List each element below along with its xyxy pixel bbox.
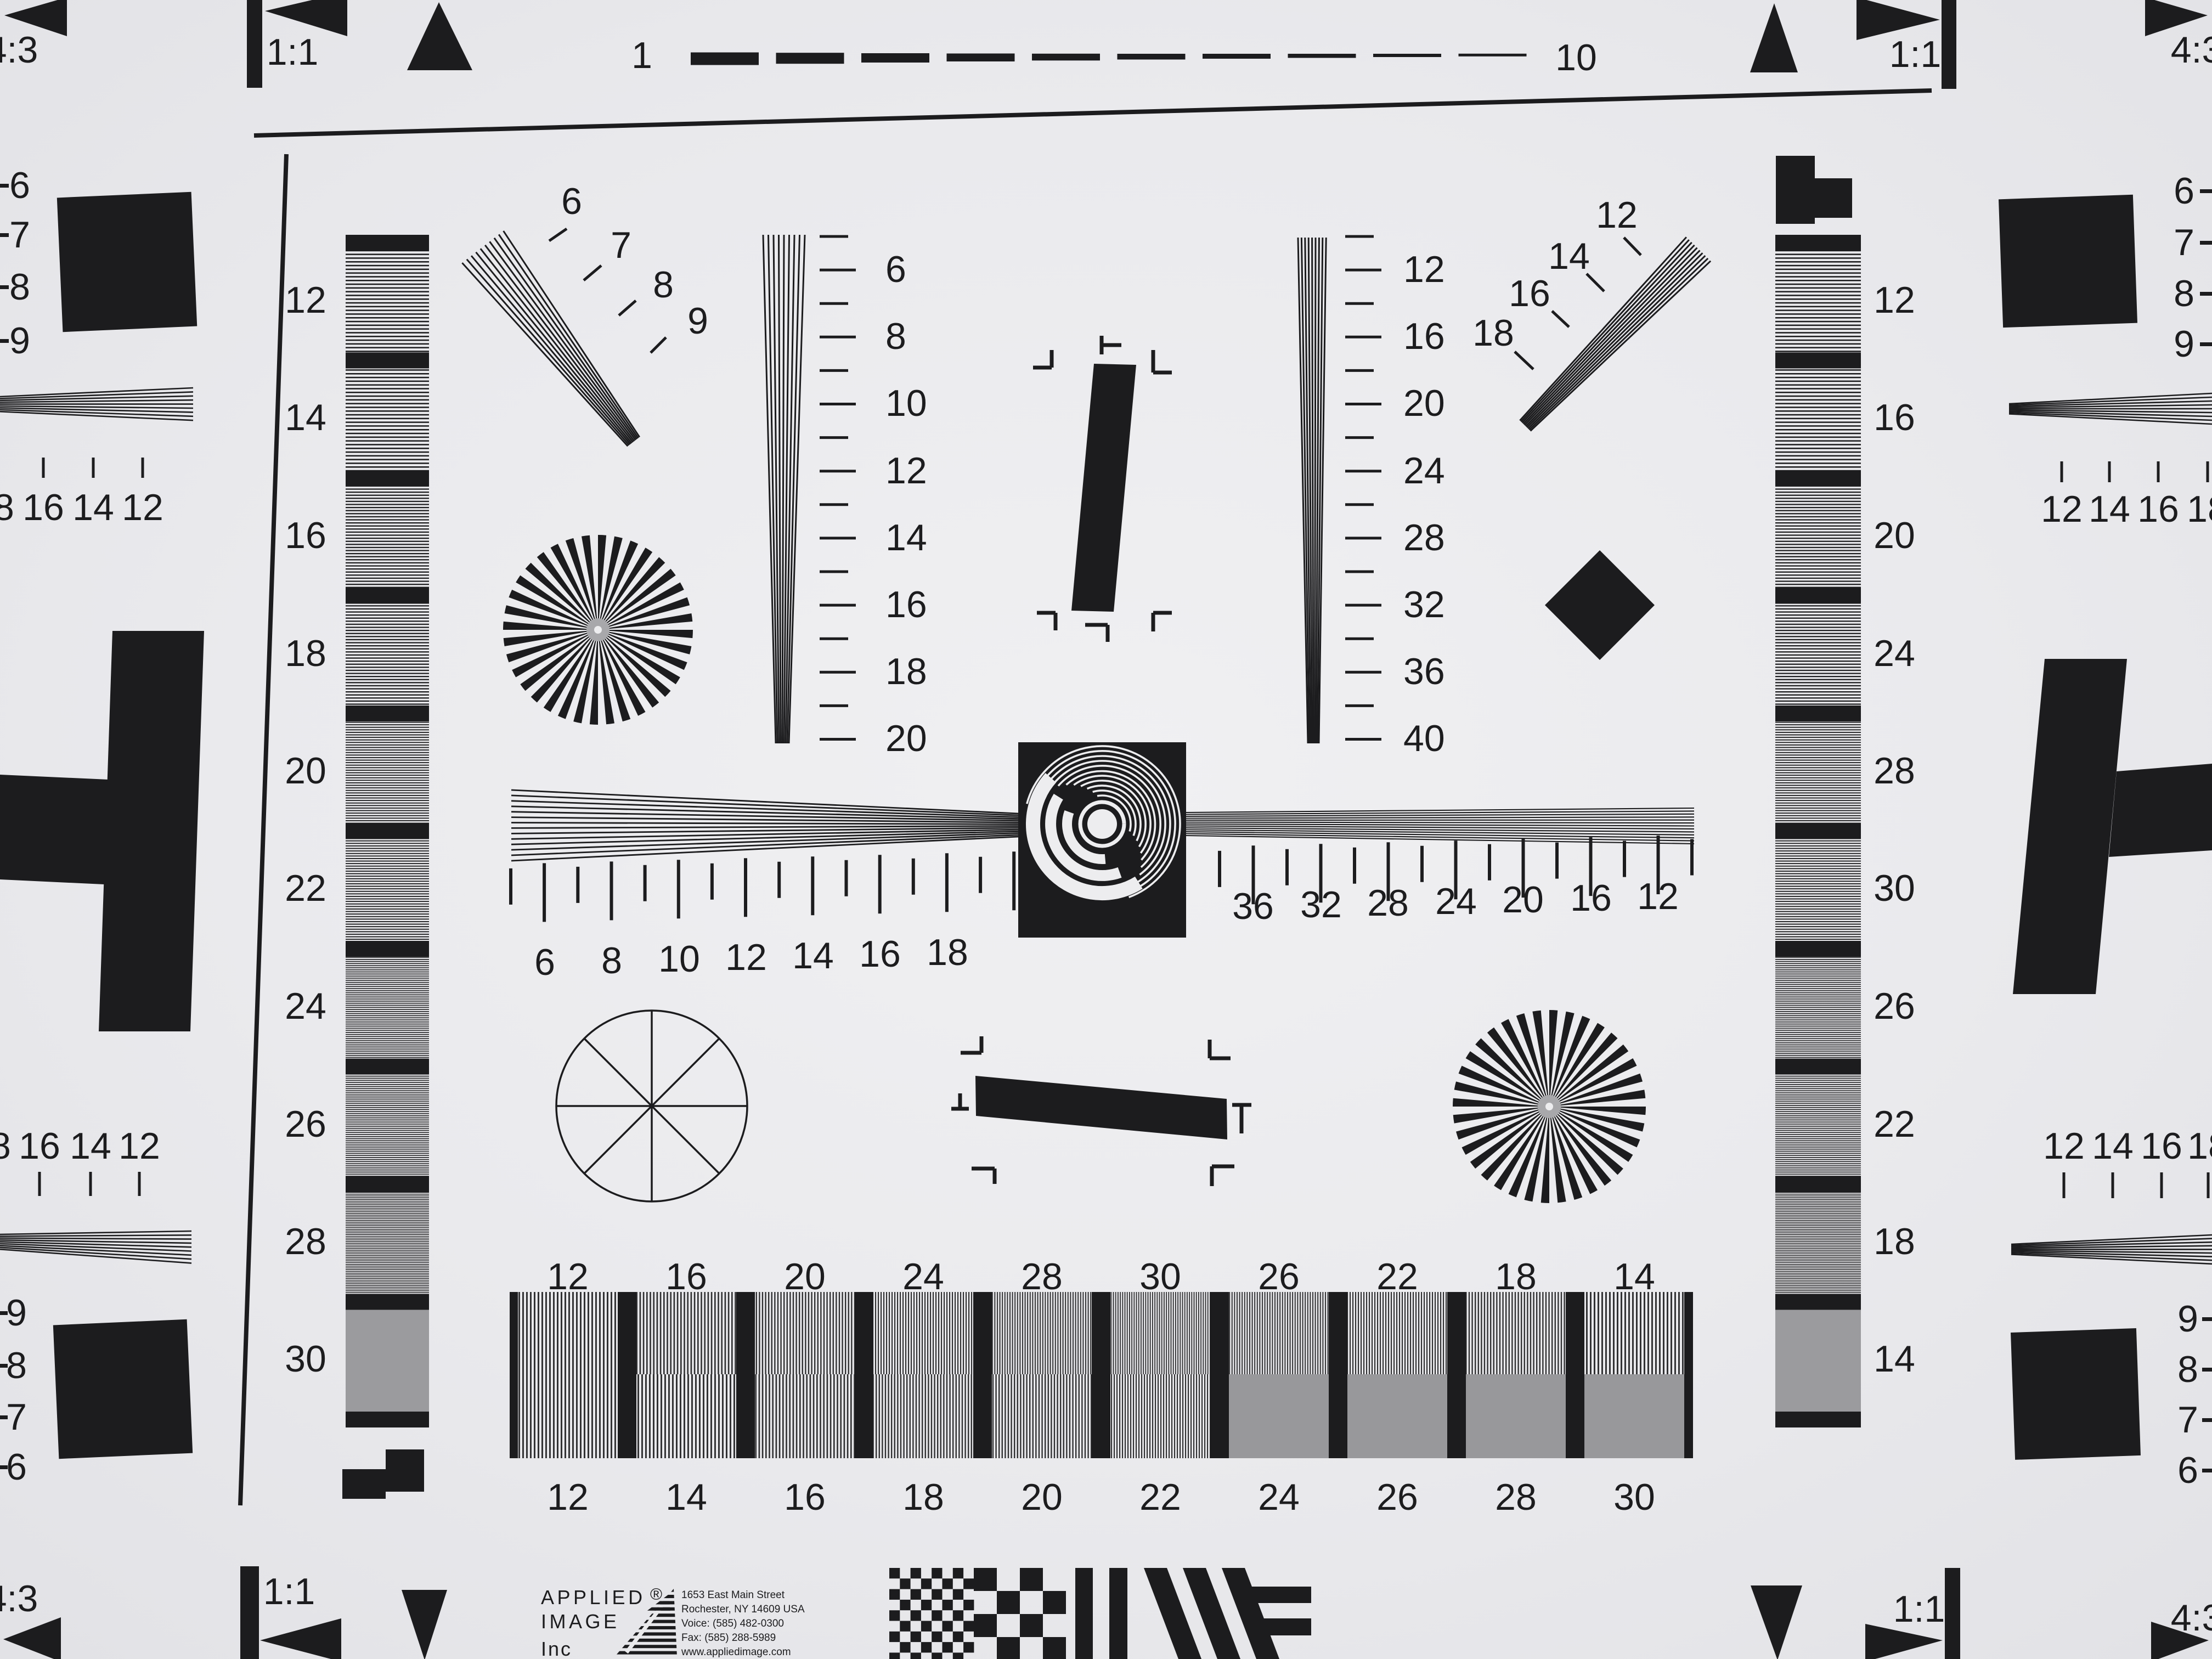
- svg-text:40: 40: [1403, 718, 1445, 759]
- svg-text:24: 24: [1258, 1476, 1300, 1518]
- svg-text:16: 16: [1509, 273, 1550, 314]
- svg-text:4:3: 4:3: [0, 1578, 38, 1620]
- svg-text:14: 14: [70, 1125, 111, 1167]
- svg-text:24: 24: [285, 985, 326, 1027]
- svg-text:14: 14: [2089, 488, 2130, 530]
- svg-text:14: 14: [72, 487, 114, 528]
- svg-text:24: 24: [1874, 633, 1915, 674]
- svg-text:16: 16: [22, 487, 64, 528]
- svg-text:30: 30: [1874, 867, 1915, 909]
- svg-text:24: 24: [1403, 450, 1445, 492]
- svg-text:26: 26: [285, 1103, 326, 1145]
- svg-text:20: 20: [1874, 515, 1915, 556]
- svg-text:28: 28: [1495, 1476, 1537, 1518]
- svg-text:12: 12: [1403, 249, 1445, 290]
- svg-text:30: 30: [285, 1338, 326, 1380]
- svg-text:14: 14: [285, 397, 326, 438]
- svg-text:20: 20: [1502, 879, 1544, 921]
- svg-text:14: 14: [1874, 1338, 1915, 1380]
- svg-text:20: 20: [1021, 1476, 1063, 1518]
- svg-text:18: 18: [885, 651, 927, 692]
- svg-text:12: 12: [285, 279, 326, 321]
- svg-text:Inc: Inc: [541, 1638, 572, 1659]
- svg-text:8: 8: [2174, 273, 2194, 314]
- svg-text:6: 6: [561, 180, 582, 222]
- svg-text:8: 8: [601, 940, 622, 981]
- svg-text:4:3: 4:3: [0, 29, 38, 71]
- svg-text:12: 12: [122, 487, 163, 528]
- svg-text:14: 14: [1548, 235, 1590, 277]
- svg-text:36: 36: [1232, 885, 1274, 927]
- svg-text:12: 12: [725, 936, 767, 978]
- svg-text:14: 14: [665, 1476, 707, 1518]
- svg-text:8: 8: [6, 1345, 27, 1386]
- svg-text:8: 8: [885, 315, 906, 357]
- svg-text:16: 16: [285, 515, 326, 556]
- svg-text:18: 18: [1472, 312, 1514, 354]
- svg-text:16: 16: [784, 1476, 826, 1518]
- svg-text:26: 26: [1874, 985, 1915, 1027]
- svg-text:20: 20: [784, 1256, 826, 1297]
- svg-text:14: 14: [1613, 1256, 1655, 1297]
- svg-text:20: 20: [1403, 382, 1445, 424]
- svg-text:6: 6: [2177, 1449, 2198, 1491]
- svg-text:9: 9: [2174, 323, 2194, 365]
- svg-text:1: 1: [631, 35, 652, 76]
- svg-text:Fax: (585) 288-5989: Fax: (585) 288-5989: [681, 1632, 776, 1644]
- svg-text:32: 32: [1300, 884, 1342, 926]
- svg-text:12: 12: [1874, 279, 1915, 321]
- svg-text:10: 10: [1555, 37, 1597, 78]
- svg-text:16: 16: [2137, 488, 2179, 530]
- svg-text:1:1: 1:1: [1889, 33, 1942, 75]
- svg-text:6: 6: [6, 1446, 27, 1488]
- svg-text:20: 20: [285, 750, 326, 792]
- svg-text:1:1: 1:1: [267, 31, 319, 73]
- svg-text:Voice: (585) 482-0300: Voice: (585) 482-0300: [681, 1618, 784, 1629]
- svg-text:12: 12: [1596, 194, 1638, 236]
- svg-text:18: 18: [1874, 1221, 1915, 1262]
- svg-text:8: 8: [9, 266, 30, 308]
- svg-text:1:1: 1:1: [1893, 1588, 1945, 1630]
- svg-text:16: 16: [1570, 877, 1612, 919]
- svg-text:16: 16: [665, 1256, 707, 1297]
- svg-text:28: 28: [1874, 750, 1915, 792]
- svg-text:24: 24: [902, 1256, 944, 1297]
- svg-text:10: 10: [885, 382, 927, 424]
- svg-text:9: 9: [9, 320, 30, 362]
- svg-text:10: 10: [658, 938, 700, 980]
- svg-text:12: 12: [119, 1125, 160, 1167]
- svg-text:14: 14: [792, 935, 834, 977]
- svg-text:28: 28: [1021, 1256, 1063, 1297]
- svg-text:6: 6: [9, 165, 30, 206]
- svg-text:18: 18: [927, 932, 968, 973]
- svg-text:22: 22: [1376, 1256, 1418, 1297]
- svg-text:30: 30: [1613, 1476, 1655, 1518]
- svg-text:26: 26: [1258, 1256, 1300, 1297]
- svg-text:18: 18: [0, 1125, 11, 1167]
- svg-text:18: 18: [285, 633, 326, 674]
- svg-text:6: 6: [534, 941, 555, 983]
- svg-text:22: 22: [1139, 1476, 1181, 1518]
- svg-text:16: 16: [19, 1125, 60, 1167]
- svg-text:18: 18: [0, 487, 14, 528]
- svg-text:12: 12: [2043, 1125, 2085, 1167]
- svg-text:9: 9: [2177, 1298, 2198, 1340]
- svg-text:9: 9: [6, 1292, 27, 1334]
- svg-text:9: 9: [687, 300, 708, 342]
- svg-text:4:3: 4:3: [2171, 29, 2212, 71]
- svg-text:14: 14: [2092, 1125, 2134, 1167]
- svg-text:36: 36: [1403, 651, 1445, 692]
- svg-text:32: 32: [1403, 584, 1445, 625]
- svg-text:7: 7: [611, 224, 631, 266]
- svg-text:28: 28: [1367, 882, 1409, 924]
- svg-text:14: 14: [885, 517, 927, 558]
- svg-text:12: 12: [547, 1256, 589, 1297]
- svg-text:16: 16: [885, 584, 927, 625]
- svg-text:22: 22: [1874, 1103, 1915, 1145]
- svg-text:1653 East Main Street: 1653 East Main Street: [681, 1589, 785, 1601]
- svg-text:18: 18: [2187, 1125, 2212, 1167]
- svg-text:6: 6: [885, 249, 906, 290]
- svg-text:16: 16: [859, 933, 901, 975]
- svg-text:12: 12: [885, 450, 927, 492]
- svg-text:7: 7: [9, 214, 30, 256]
- svg-text:7: 7: [2174, 222, 2194, 263]
- svg-text:16: 16: [1874, 397, 1915, 438]
- svg-text:26: 26: [1376, 1476, 1418, 1518]
- svg-text:18: 18: [902, 1476, 944, 1518]
- svg-text:8: 8: [2177, 1348, 2198, 1390]
- svg-text:18: 18: [1495, 1256, 1537, 1297]
- svg-text:18: 18: [2187, 488, 2212, 530]
- svg-text:12: 12: [1637, 876, 1679, 917]
- svg-text:www.appliedimage.com: www.appliedimage.com: [681, 1646, 791, 1658]
- svg-text:1:1: 1:1: [263, 1571, 315, 1612]
- svg-text:28: 28: [285, 1221, 326, 1262]
- svg-text:12: 12: [547, 1476, 589, 1518]
- svg-text:16: 16: [2141, 1125, 2182, 1167]
- svg-text:APPLIED: APPLIED: [541, 1586, 646, 1609]
- svg-text:20: 20: [885, 718, 927, 759]
- svg-text:24: 24: [1435, 881, 1477, 922]
- svg-text:16: 16: [1403, 315, 1445, 357]
- svg-text:IMAGE: IMAGE: [541, 1610, 620, 1633]
- svg-text:6: 6: [2174, 170, 2194, 212]
- svg-text:22: 22: [285, 867, 326, 909]
- svg-text:28: 28: [1403, 517, 1445, 558]
- svg-text:30: 30: [1139, 1256, 1181, 1297]
- svg-text:12: 12: [2041, 488, 2083, 530]
- svg-text:4:3: 4:3: [2171, 1597, 2212, 1639]
- svg-text:7: 7: [2177, 1399, 2198, 1441]
- svg-text:Rochester, NY 14609 USA: Rochester, NY 14609 USA: [681, 1604, 805, 1615]
- svg-text:8: 8: [653, 264, 674, 306]
- svg-text:7: 7: [6, 1396, 27, 1438]
